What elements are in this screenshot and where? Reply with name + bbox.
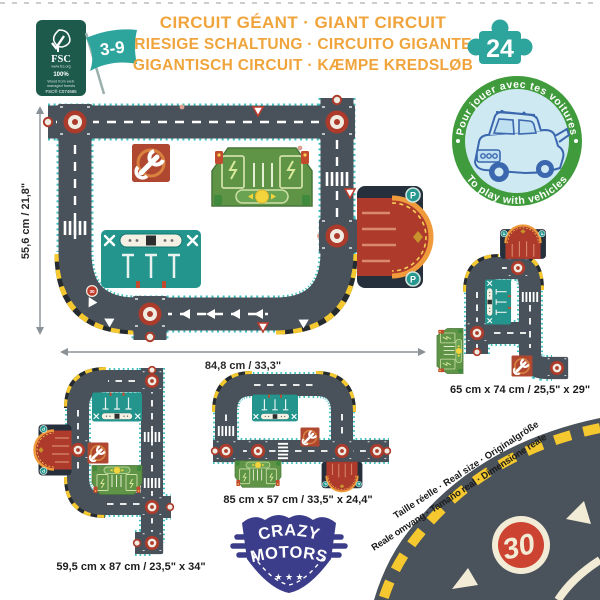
variant-circuit-right: 65 cm x 74 cm / 25,5" x 29" [437,226,590,396]
width-dimension-label: 84,8 cm / 33,3" [205,360,281,372]
charging-station-tile [235,461,281,488]
logo-stars: ★ ★ ★ [274,572,303,582]
roundabout [507,257,529,279]
speed-limit-sign: 30 [492,516,550,574]
piece-count: 24 [486,35,514,63]
artwork: 30 [0,0,600,600]
roundabout [247,440,269,462]
wrench-garage-tile [132,144,170,182]
charging-station-tile [92,466,142,495]
fsc-claim-2: managed forests [47,84,75,88]
parking-tile [322,462,363,492]
road-end-cap [149,367,156,374]
parking-tile [500,226,546,259]
fsc-percent: 100% [53,72,69,78]
parking-tile [35,425,72,476]
pitstop-tile [92,393,142,422]
title-line-1: CIRCUIT GÉANT · GIANT CIRCUIT [160,13,447,32]
roundabout [319,218,355,254]
pitstop-tile [252,395,298,422]
roundabout [132,296,168,332]
crazy-motors-logo: CRAZY MOTORS ★ ★ ★ [233,515,345,593]
pitstop-tile [485,280,511,325]
fsc-license: FSC® C074685 [45,89,77,94]
road-end-cap [146,333,154,341]
speed-30-mini-sign [87,286,98,297]
roundabout [466,322,488,344]
variant-circuit-left: 59,5 cm x 87 cm / 23,5" x 34" [35,367,206,573]
variant-right-size-label: 65 cm x 74 cm / 25,5" x 29" [450,384,590,396]
roundabout [319,104,355,140]
charging-station-tile [212,148,312,206]
wrench-garage-tile [512,356,533,377]
roundabout [331,440,353,462]
road-end-cap [474,349,481,356]
main-circuit [44,96,431,341]
roundabout [57,104,93,140]
wrench-garage-tile [88,443,109,464]
roundabout [546,357,568,379]
wrench-garage-tile [301,428,320,447]
road-end-cap [167,504,174,511]
real-size-banner: 30 Taille réelle · Real size · Originalg… [370,418,600,600]
title-line-2: RIESIGE SCHALTUNG · CIRCUITO GIGANTE [134,36,471,53]
road-end-cap [212,448,219,455]
charging-station-tile [437,329,463,374]
height-dimension-label: 55,6 cm / 21,8" [20,183,32,259]
age-flag: 3-9 [86,29,137,94]
road-end-cap [384,448,391,455]
road-end-cap [44,118,52,126]
fsc-brand: FSC [51,54,71,65]
title-line-3: GIGANTISCH CIRCUIT · KÆMPE KREDSLØB [133,57,473,74]
parking-tile [357,186,431,288]
title-block: CIRCUIT GÉANT · GIANT CIRCUIT RIESIGE SC… [133,13,473,74]
road-end-cap [134,540,141,547]
age-flag-label: 3-9 [99,38,126,60]
roundabout [141,496,163,518]
variant-middle-size-label: 85 cm x 57 cm / 33,5" x 24,4" [223,494,372,506]
box-back-panel: 30 [0,0,600,600]
pitstop-tile [101,230,201,288]
fsc-label: FSC www.fsc.org 100% Wood from well- man… [36,20,86,96]
roundabout [141,532,163,554]
fsc-site: www.fsc.org [51,65,70,69]
vehicles-badge: Pour jouer avec tes voitures To play wit… [452,76,582,207]
height-dimension: 55,6 cm / 21,8" [20,106,44,335]
variant-circuit-middle: 85 cm x 57 cm / 33,5" x 24,4" [212,374,391,506]
puzzle-piece-icon: 24 [468,20,533,65]
variant-left-size-label: 59,5 cm x 87 cm / 23,5" x 34" [56,561,205,573]
road-end-cap [333,96,341,104]
